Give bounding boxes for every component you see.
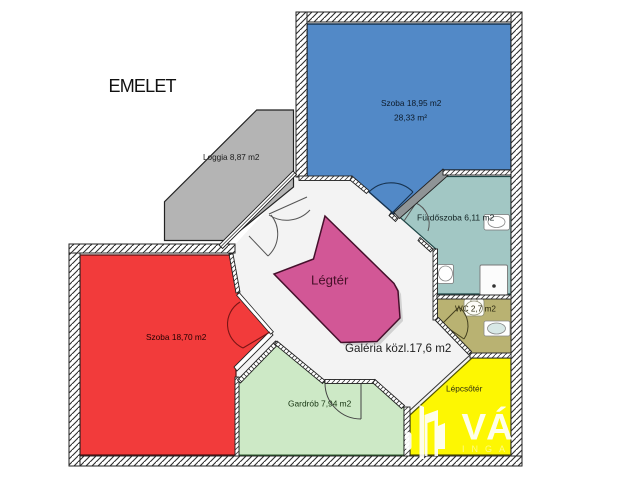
svg-text:Szoba 18,95 m2: Szoba 18,95 m2: [381, 98, 442, 108]
svg-text:EMELET: EMELET: [109, 76, 177, 96]
svg-text:Gardrób 7,94 m2: Gardrób 7,94 m2: [288, 399, 352, 409]
svg-text:28,33 m²: 28,33 m²: [394, 113, 427, 123]
svg-text:Loggia 8,87 m2: Loggia 8,87 m2: [203, 153, 260, 162]
svg-text:Légtér: Légtér: [311, 273, 349, 288]
svg-text:Lépcsőtér: Lépcsőtér: [446, 384, 483, 394]
svg-text:VÁ: VÁ: [462, 407, 513, 448]
svg-text:Galéria közl.17,6 m2: Galéria közl.17,6 m2: [345, 342, 451, 355]
svg-text:INGA: INGA: [462, 444, 512, 454]
svg-text:Szoba 18,70 m2: Szoba 18,70 m2: [146, 332, 207, 342]
